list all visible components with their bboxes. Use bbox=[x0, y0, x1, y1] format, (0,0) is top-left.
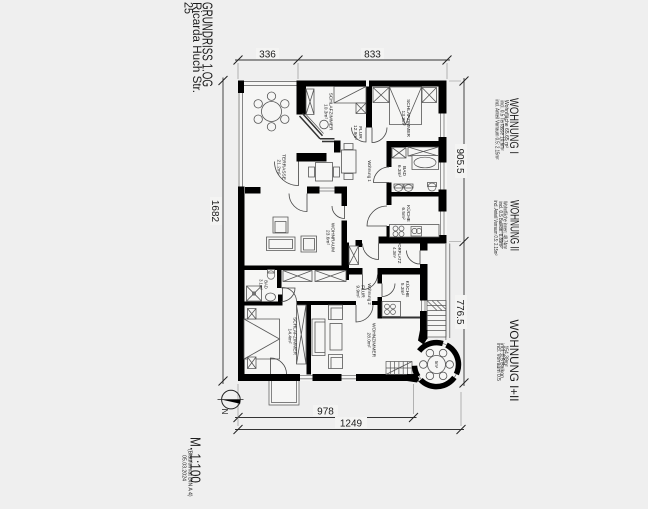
svg-text:23.6m²: 23.6m² bbox=[324, 230, 330, 245]
svg-text:12.9m²: 12.9m² bbox=[352, 125, 358, 140]
svg-text:Ricarda Huch Str.: Ricarda Huch Str. bbox=[190, 2, 202, 93]
svg-text:833: 833 bbox=[364, 50, 381, 61]
svg-text:WOHNUNG II: WOHNUNG II bbox=[508, 200, 522, 251]
svg-text:5m²: 5m² bbox=[434, 361, 439, 369]
svg-text:incl. Anteil Vorraum 0.5: 2.15: incl. Anteil Vorraum 0.5: 2.15m² bbox=[492, 201, 498, 256]
svg-text:KÜCHE: KÜCHE bbox=[404, 281, 411, 298]
svg-text:KÜCHE: KÜCHE bbox=[405, 205, 412, 222]
svg-text:Wohnung 2: Wohnung 2 bbox=[367, 283, 372, 305]
svg-text:SCHLAFZIMMER: SCHLAFZIMMER bbox=[405, 99, 411, 137]
svg-text:4.3m²: 4.3m² bbox=[392, 247, 397, 258]
svg-text:incl. Vorraum 0.5: incl. Vorraum 0.5 bbox=[495, 343, 501, 381]
svg-text:FLUR: FLUR bbox=[357, 126, 363, 139]
svg-text:WOHNRAUM: WOHNRAUM bbox=[330, 223, 336, 252]
svg-text:05.03.2024: 05.03.2024 bbox=[181, 455, 187, 481]
svg-text:9.9m²: 9.9m² bbox=[354, 285, 360, 298]
svg-text:5.3m²: 5.3m² bbox=[399, 283, 405, 296]
svg-text:N: N bbox=[220, 409, 229, 415]
svg-text:21.2m²: 21.2m² bbox=[275, 160, 281, 175]
svg-text:TERRASSE: TERRASSE bbox=[281, 154, 287, 180]
svg-text:Wohnung 1: Wohnung 1 bbox=[367, 160, 372, 182]
svg-text:BAD: BAD bbox=[401, 166, 407, 176]
svg-text:25: 25 bbox=[182, 2, 194, 14]
svg-text:28.0m²: 28.0m² bbox=[365, 333, 371, 348]
svg-text:336: 336 bbox=[259, 50, 276, 61]
svg-text:FLUR: FLUR bbox=[360, 285, 366, 298]
svg-text:SCHLAFZIMMER: SCHLAFZIMMER bbox=[292, 317, 298, 355]
svg-text:3.1m²: 3.1m² bbox=[259, 279, 264, 290]
svg-text:905.5: 905.5 bbox=[454, 148, 465, 173]
svg-text:13.3m²: 13.3m² bbox=[400, 111, 406, 126]
svg-text:1249: 1249 bbox=[340, 419, 363, 430]
svg-text:incl. Anteil Vorraum 0.5: 2.15: incl. Anteil Vorraum 0.5: 2.15m² bbox=[494, 100, 500, 160]
svg-text:6.5m²: 6.5m² bbox=[400, 207, 406, 220]
svg-text:SCHLAFZIMMER: SCHLAFZIMMER bbox=[328, 93, 334, 131]
svg-text:776.5: 776.5 bbox=[454, 299, 465, 324]
svg-text:6.3m²: 6.3m² bbox=[396, 165, 402, 178]
svg-text:WOHNZIMMER: WOHNZIMMER bbox=[371, 323, 377, 358]
svg-text:14.4m²: 14.4m² bbox=[286, 329, 292, 344]
svg-text:1682: 1682 bbox=[209, 200, 220, 223]
svg-text:10.3m²: 10.3m² bbox=[322, 104, 328, 119]
svg-text:978: 978 bbox=[317, 407, 334, 418]
